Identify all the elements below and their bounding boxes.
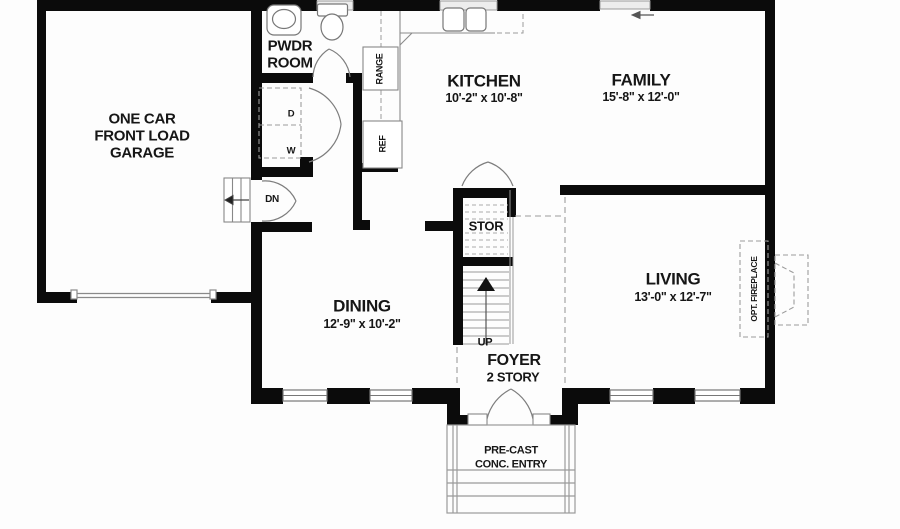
- garage-label-line3: GARAGE: [110, 146, 174, 161]
- family-dims: 15'-8" x 12'-0": [602, 91, 679, 104]
- front-door-swing-icon: [487, 389, 533, 419]
- slider-arrow-icon: [632, 12, 654, 19]
- foyer-sub-label: 2 STORY: [487, 371, 540, 384]
- dn-label: DN: [264, 195, 280, 205]
- closet-double-door-icon: [309, 88, 341, 162]
- opt-fireplace-label: OPT. FIREPLACE: [750, 256, 759, 321]
- stor-door-swing-icon: [462, 162, 513, 186]
- stair-treads: [463, 190, 513, 344]
- living-label: LIVING: [646, 271, 701, 288]
- washer-label: W: [287, 146, 296, 156]
- walls: [37, 0, 775, 425]
- dining-label: DINING: [333, 298, 391, 315]
- powder-sink-fixture: [267, 5, 301, 35]
- dining-dims: 12'-9" x 10'-2": [323, 318, 400, 331]
- front-door-sidelights: [468, 414, 550, 425]
- range-label: RANGE: [376, 53, 385, 84]
- powder-room-label-line2: ROOM: [267, 56, 312, 71]
- living-dims: 13'-0" x 12'-7": [634, 291, 711, 304]
- kitchen-label: KITCHEN: [447, 73, 520, 90]
- kitchen-sink-fixture: [443, 8, 486, 31]
- entry-label-line2: CONC. ENTRY: [475, 460, 547, 471]
- family-label: FAMILY: [612, 72, 671, 89]
- garage-door: [71, 290, 216, 299]
- entry-label-line1: PRE-CAST: [484, 446, 538, 457]
- powder-room-label-line1: PWDR: [268, 39, 313, 54]
- garage-label-line2: FRONT LOAD: [94, 129, 189, 144]
- floor-plan: ONE CAR FRONT LOAD GARAGE PWDR ROOM KITC…: [0, 0, 900, 529]
- toilet-fixture: [318, 4, 348, 40]
- stair-up-arrow-icon: [477, 277, 495, 344]
- foyer-label: FOYER: [487, 353, 541, 369]
- powder-door-swing-icon: [313, 49, 350, 77]
- ref-label: REF: [379, 135, 388, 152]
- kitchen-dims: 10'-2" x 10'-8": [445, 92, 522, 105]
- family-slider-door: [600, 1, 650, 9]
- up-label: UP: [478, 338, 493, 349]
- stor-label: STOR: [467, 220, 506, 233]
- dryer-label: D: [288, 109, 295, 119]
- garage-label-line1: ONE CAR: [108, 112, 175, 127]
